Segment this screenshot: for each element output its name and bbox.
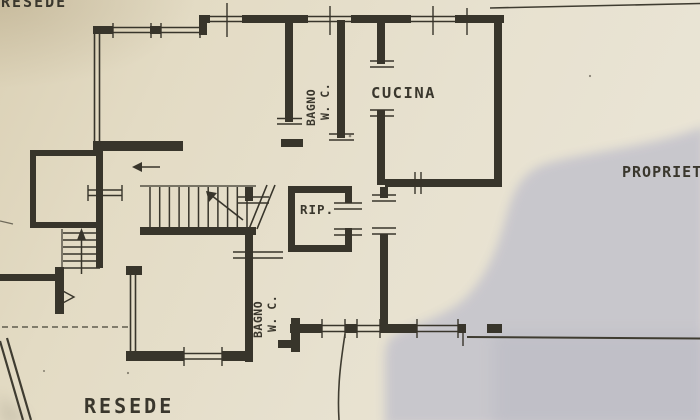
- label-proprieta: PROPRIETA: [622, 163, 700, 181]
- label-bagno2-line2: W. C.: [265, 295, 279, 332]
- label-bagno2-line1: BAGNO: [251, 301, 265, 338]
- boundary-top-right: [490, 4, 700, 9]
- entry-arrowhead: [132, 162, 142, 172]
- boundary-diagonals: [0, 338, 31, 420]
- boundary-curve: [338, 334, 345, 420]
- edge-mark: [0, 221, 13, 224]
- entry-arrows: [59, 162, 160, 309]
- label-rip: RIP.: [300, 202, 334, 217]
- label-cucina: CUCINA: [371, 84, 436, 102]
- scanned-floorplan-photo: RESEDE CUCINA BAGNO W. C. RIP. BAGNO W. …: [0, 0, 700, 420]
- floorplan-drawing: RESEDE CUCINA BAGNO W. C. RIP. BAGNO W. …: [0, 0, 700, 420]
- label-resede-top: RESEDE: [1, 0, 67, 11]
- boundary-right: [467, 337, 700, 339]
- staircase-exterior: [62, 228, 100, 274]
- label-bagno1-line2: W. C.: [318, 83, 332, 120]
- stair-arrowhead: [77, 228, 86, 240]
- boundary-lines: [0, 4, 700, 420]
- label-bagno1-line1: BAGNO: [304, 89, 318, 126]
- label-resede-bottom: RESEDE: [84, 394, 174, 418]
- staircase-main: [140, 185, 275, 229]
